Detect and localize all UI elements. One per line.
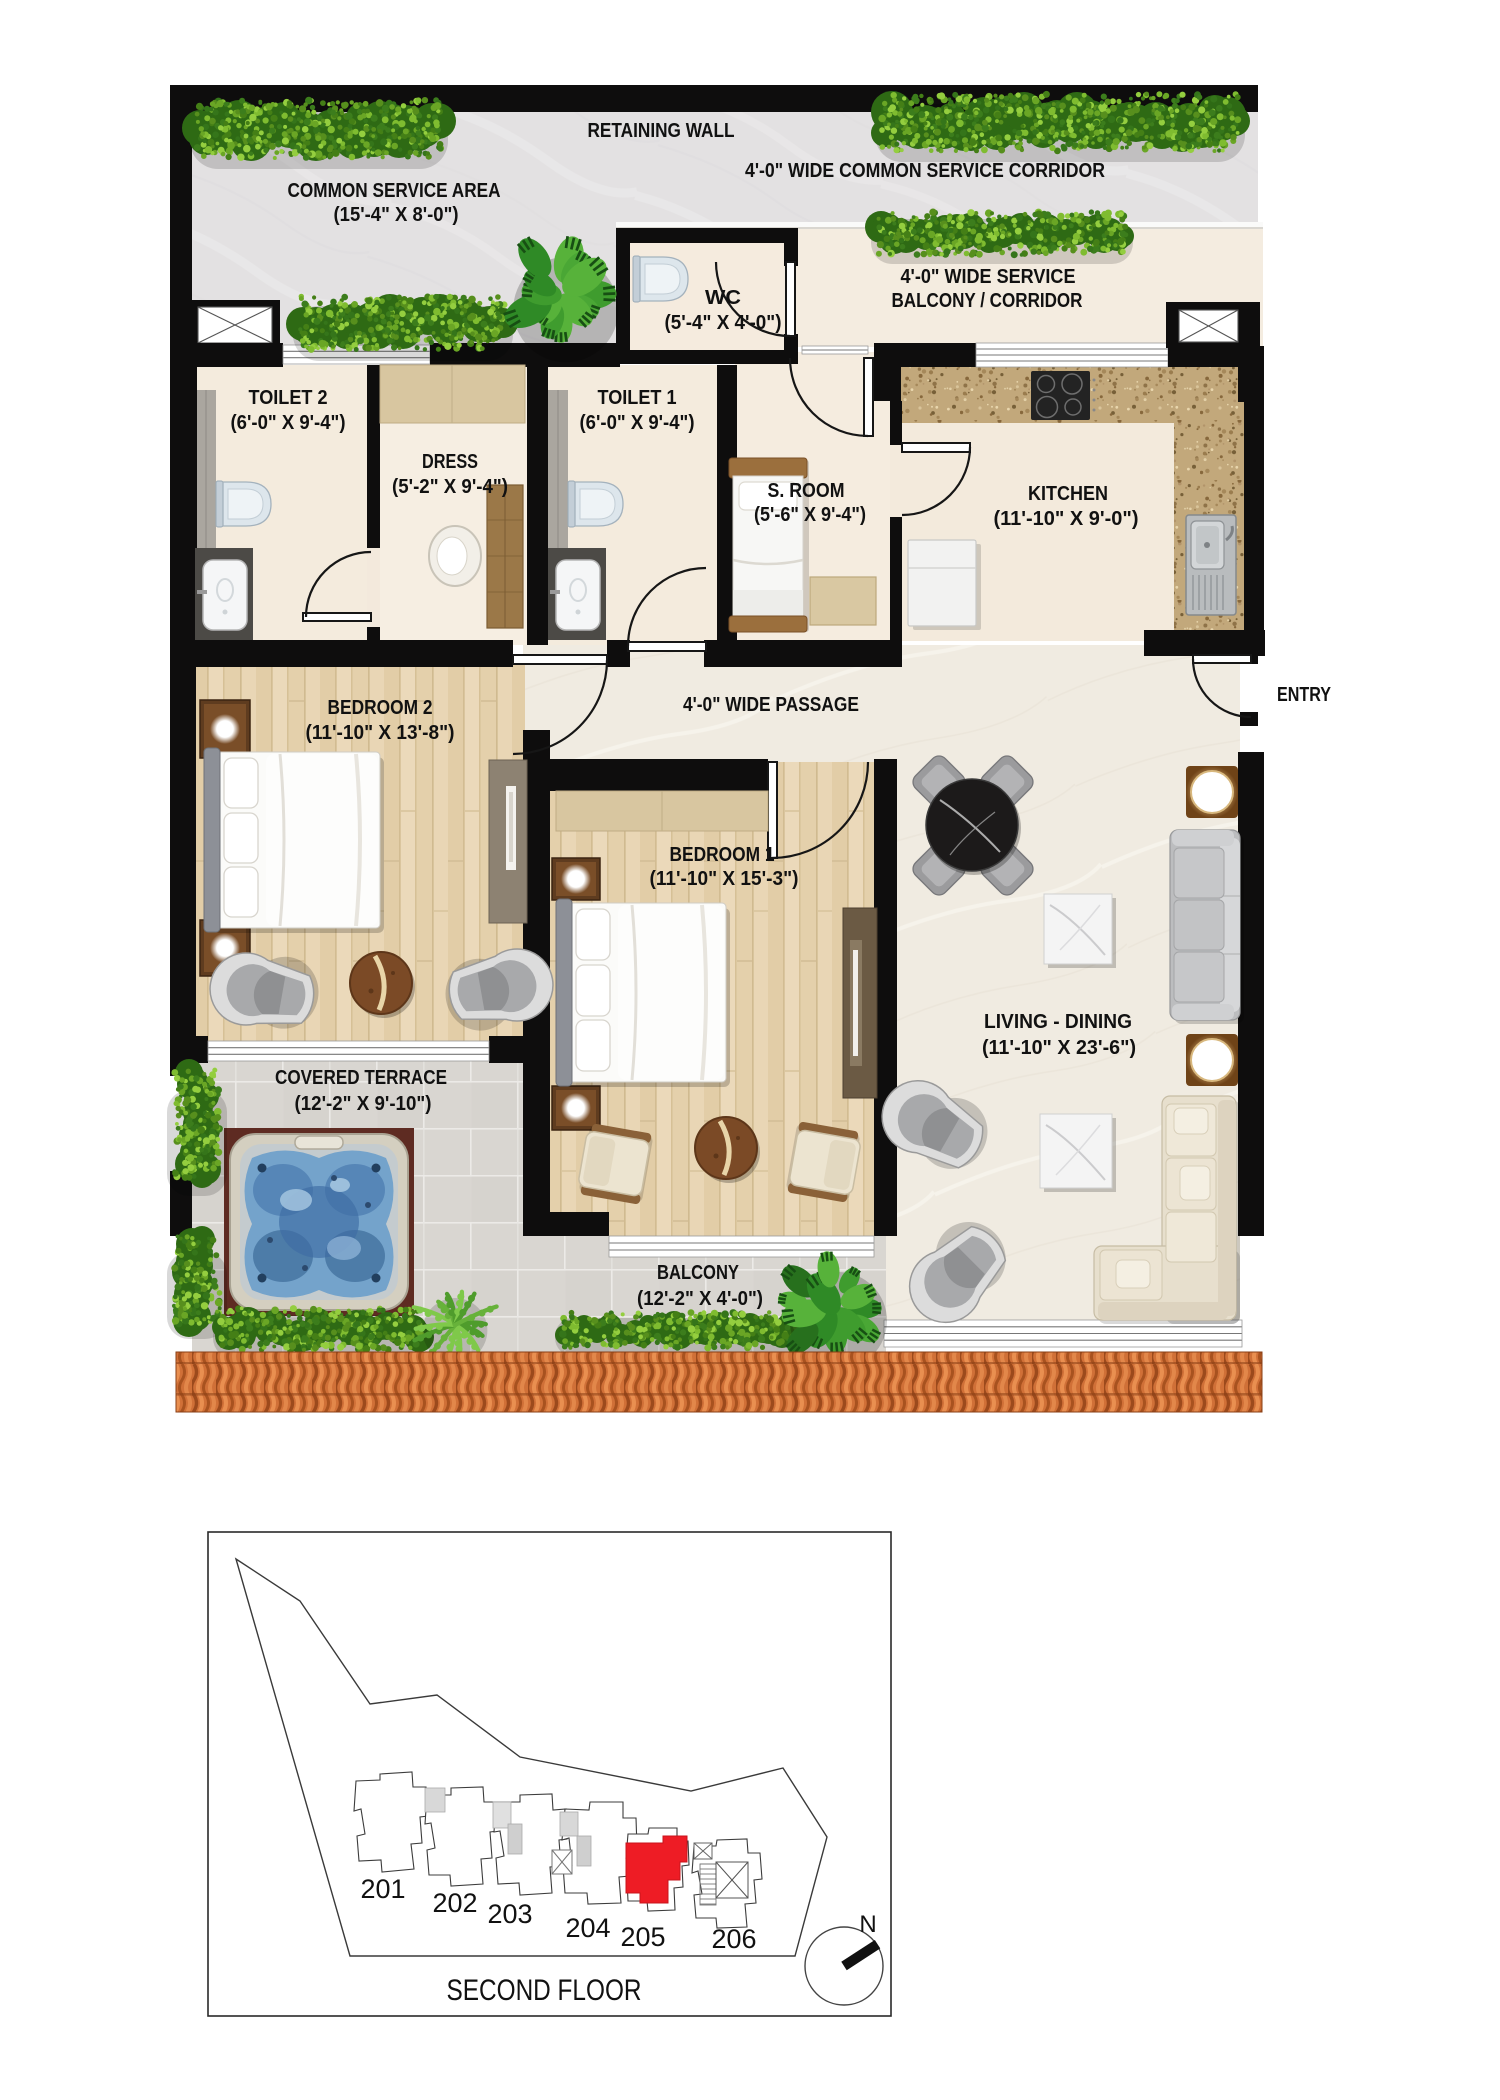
svg-text:(12'-2" X 9'-10"): (12'-2" X 9'-10") (295, 1093, 432, 1115)
svg-text:COVERED TERRACE: COVERED TERRACE (275, 1067, 447, 1089)
svg-text:(6'-0" X 9'-4"): (6'-0" X 9'-4") (580, 412, 695, 434)
svg-text:BEDROOM 2: BEDROOM 2 (328, 697, 433, 719)
svg-text:(15'-4" X 8'-0"): (15'-4" X 8'-0") (334, 204, 459, 226)
svg-text:(11'-10" X 15'-3"): (11'-10" X 15'-3") (650, 868, 799, 890)
svg-text:BEDROOM 1: BEDROOM 1 (670, 844, 775, 866)
svg-text:BALCONY / CORRIDOR: BALCONY / CORRIDOR (892, 290, 1083, 312)
svg-text:COMMON SERVICE AREA: COMMON SERVICE AREA (288, 180, 501, 202)
svg-text:LIVING - DINING: LIVING - DINING (984, 1011, 1132, 1033)
svg-text:(12'-2" X 4'-0"): (12'-2" X 4'-0") (637, 1288, 763, 1310)
svg-text:DRESS: DRESS (422, 451, 478, 473)
svg-text:KITCHEN: KITCHEN (1028, 483, 1108, 505)
svg-text:BALCONY: BALCONY (657, 1262, 740, 1284)
svg-text:WC: WC (705, 287, 741, 309)
svg-text:(6'-0" X 9'-4"): (6'-0" X 9'-4") (231, 412, 346, 434)
svg-text:205: 205 (620, 1922, 665, 1952)
svg-text:206: 206 (711, 1924, 756, 1954)
svg-text:4'-0" WIDE COMMON SERVICE CORR: 4'-0" WIDE COMMON SERVICE CORRIDOR (745, 160, 1105, 182)
svg-text:(5'-2" X 9'-4"): (5'-2" X 9'-4") (392, 476, 508, 498)
svg-text:204: 204 (565, 1913, 610, 1943)
svg-text:(5'-6" X 9'-4"): (5'-6" X 9'-4") (754, 504, 866, 526)
svg-text:S. ROOM: S. ROOM (768, 480, 845, 502)
svg-text:TOILET 2: TOILET 2 (249, 387, 328, 409)
svg-text:N: N (859, 1911, 876, 1938)
svg-text:RETAINING WALL: RETAINING WALL (588, 120, 735, 142)
svg-text:(11'-10" X 9'-0"): (11'-10" X 9'-0") (994, 508, 1139, 530)
svg-text:201: 201 (360, 1874, 405, 1904)
svg-text:SECOND FLOOR: SECOND FLOOR (447, 1974, 642, 2007)
svg-text:4'-0" WIDE PASSAGE: 4'-0" WIDE PASSAGE (683, 694, 859, 716)
svg-text:TOILET 1: TOILET 1 (598, 387, 677, 409)
svg-text:ENTRY: ENTRY (1277, 684, 1332, 706)
svg-text:(11'-10" X 23'-6"): (11'-10" X 23'-6") (982, 1037, 1136, 1059)
svg-text:4'-0" WIDE SERVICE: 4'-0" WIDE SERVICE (901, 266, 1076, 288)
svg-text:203: 203 (487, 1899, 532, 1929)
svg-text:202: 202 (432, 1888, 477, 1918)
svg-text:(11'-10" X 13'-8"): (11'-10" X 13'-8") (306, 722, 455, 744)
svg-text:(5'-4" X 4'-0"): (5'-4" X 4'-0") (665, 312, 782, 334)
